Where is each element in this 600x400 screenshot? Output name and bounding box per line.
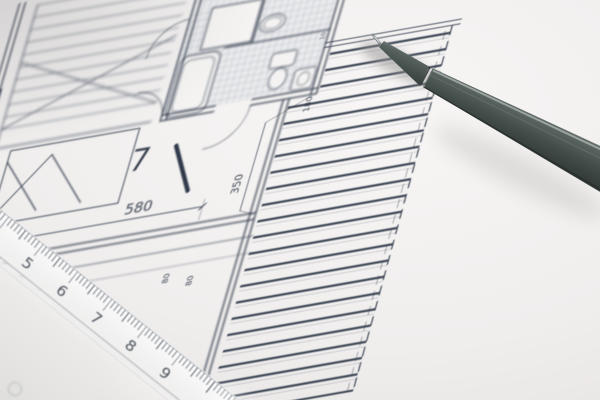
furniture xyxy=(0,128,140,225)
dimension-80-left-label: 80 xyxy=(159,272,172,284)
photo-canvas: 7 580 350 180 80 80 10 xyxy=(0,0,600,400)
marker-stroke xyxy=(162,141,203,196)
room-number-label: 7 xyxy=(124,142,154,180)
staircase xyxy=(0,0,193,149)
photo-architectural-plan: 7 580 350 180 80 80 10 xyxy=(0,0,600,400)
window-marker xyxy=(0,89,2,104)
dimension-80-right-label: 80 xyxy=(183,275,196,287)
dimension-350-label: 350 xyxy=(228,173,247,195)
